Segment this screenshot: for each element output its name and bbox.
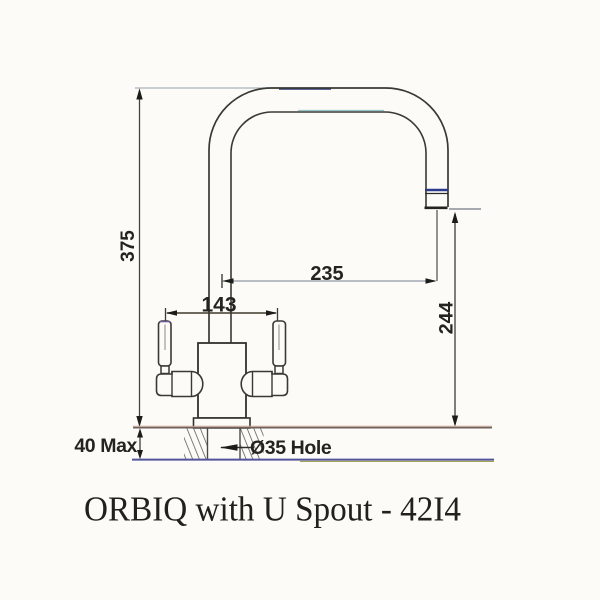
svg-text:143: 143 bbox=[201, 294, 236, 317]
svg-text:Ø35 Hole: Ø35 Hole bbox=[250, 437, 332, 459]
svg-text:244: 244 bbox=[436, 302, 458, 335]
svg-text:235: 235 bbox=[310, 263, 343, 285]
svg-text:40 Max: 40 Max bbox=[74, 435, 137, 457]
svg-text:ORBIQ with U Spout - 42I4: ORBIQ with U Spout - 42I4 bbox=[84, 490, 461, 529]
svg-text:375: 375 bbox=[118, 230, 139, 262]
